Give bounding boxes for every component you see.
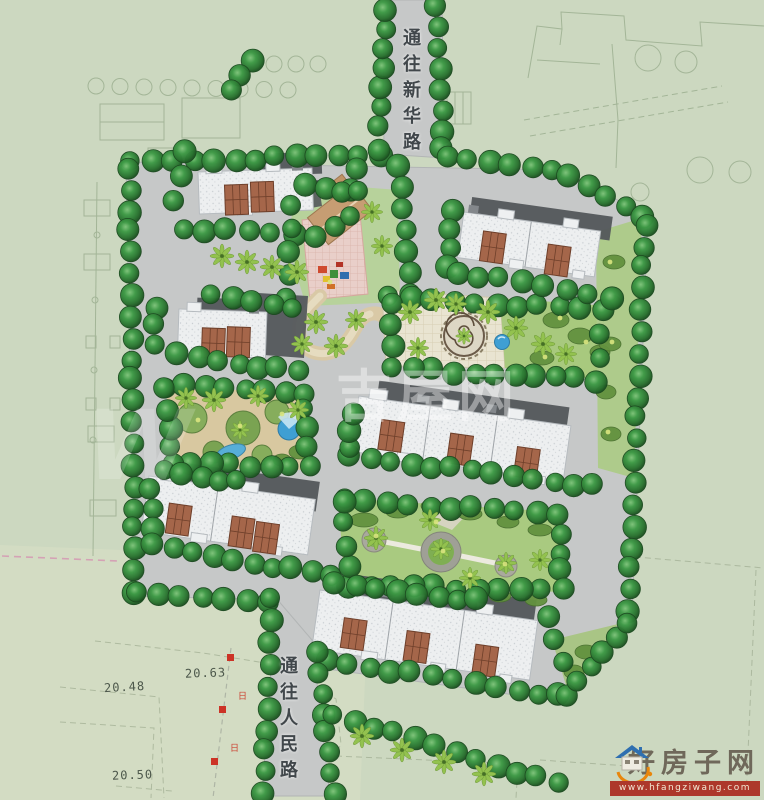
road-label-top: 通往新华路 bbox=[397, 28, 423, 158]
hfangzi-logo: 好房子网 www.hfangziwang.com bbox=[610, 741, 760, 796]
elevation-mark: 20.48 bbox=[104, 679, 146, 695]
elevation-mark: 20.63 bbox=[185, 665, 227, 680]
watermark-ghost-letter: W bbox=[86, 390, 192, 502]
elevation-mark: 20.50 bbox=[112, 767, 154, 782]
site-plan-page: 日 日 bbox=[0, 0, 764, 800]
house-logo-icon bbox=[610, 741, 656, 781]
pole-mark: 日 bbox=[238, 691, 247, 702]
road-label-bottom: 通往人民路 bbox=[274, 656, 300, 786]
logo-url-text: www.hfangziwang.com bbox=[619, 783, 751, 793]
pole-mark: 日 bbox=[230, 743, 239, 754]
round-pool bbox=[495, 335, 510, 350]
logo-url-bar: www.hfangziwang.com bbox=[610, 781, 760, 796]
watermark-text: 吉屋网 bbox=[336, 352, 519, 433]
